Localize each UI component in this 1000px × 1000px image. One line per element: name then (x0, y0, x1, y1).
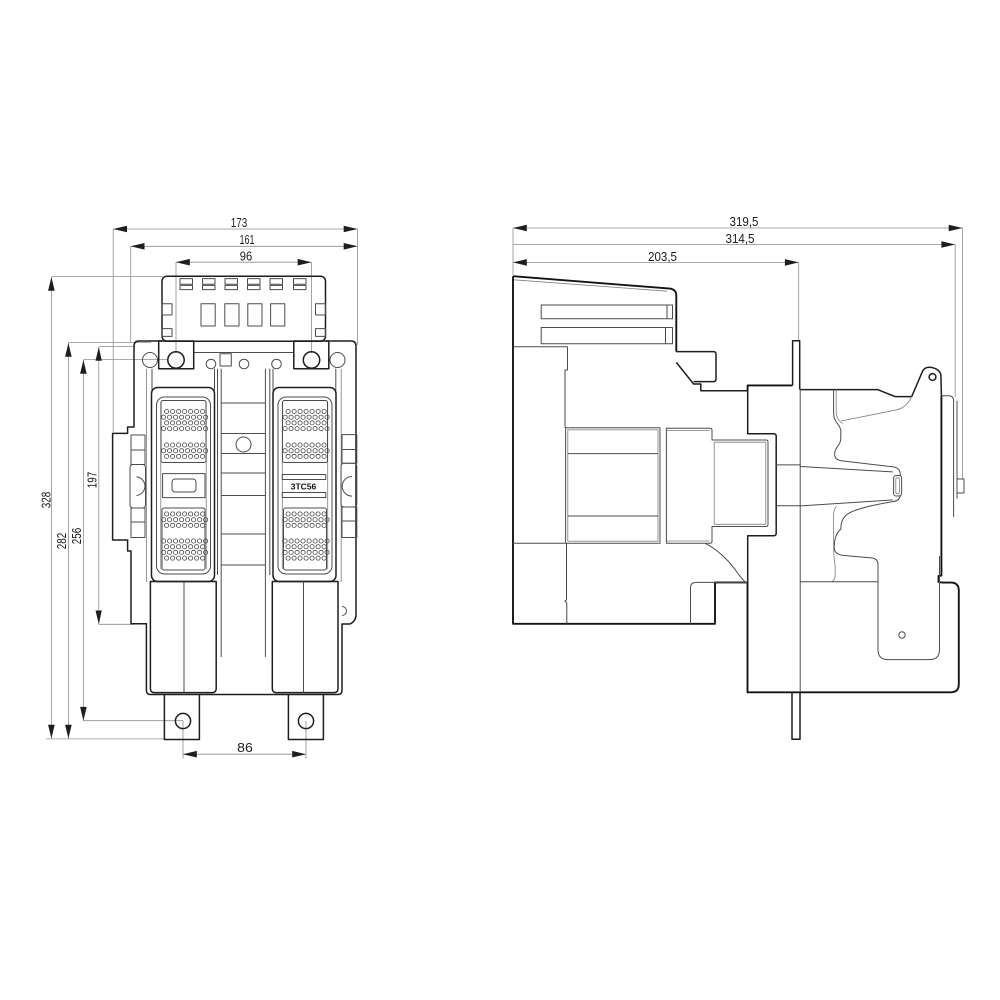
svg-text:319,5: 319,5 (730, 214, 759, 229)
svg-text:256: 256 (69, 528, 84, 545)
svg-text:161: 161 (240, 232, 255, 247)
svg-text:197: 197 (85, 472, 100, 489)
svg-text:282: 282 (54, 533, 69, 550)
svg-text:173: 173 (231, 215, 248, 230)
svg-text:3TC56: 3TC56 (291, 482, 317, 492)
svg-text:328: 328 (39, 492, 54, 509)
svg-text:203,5: 203,5 (648, 249, 677, 264)
svg-text:96: 96 (240, 249, 253, 264)
svg-text:314,5: 314,5 (726, 231, 755, 246)
svg-text:86: 86 (237, 740, 253, 755)
